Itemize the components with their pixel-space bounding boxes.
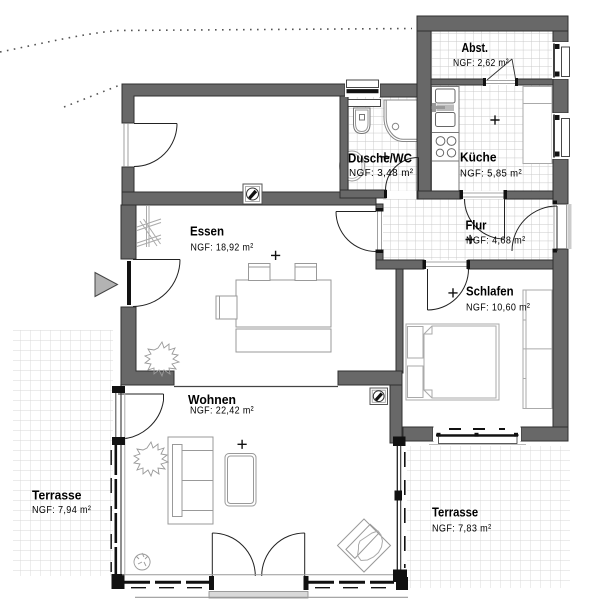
svg-text:Terrasse: Terrasse <box>32 488 82 503</box>
svg-text:Küche: Küche <box>460 150 497 165</box>
svg-text:Essen: Essen <box>190 224 224 239</box>
svg-text:NGF: 5,85 m²: NGF: 5,85 m² <box>460 169 522 180</box>
svg-text:NGF: 2,62 m²: NGF: 2,62 m² <box>453 58 509 69</box>
svg-text:NGF: 7,83 m²: NGF: 7,83 m² <box>432 524 492 535</box>
svg-text:Schlafen: Schlafen <box>466 284 514 299</box>
svg-text:NGF: 22,42 m²: NGF: 22,42 m² <box>190 406 254 417</box>
svg-text:NGF: 10,60 m²: NGF: 10,60 m² <box>466 303 531 314</box>
svg-text:NGF: 3,48 m²: NGF: 3,48 m² <box>349 168 414 179</box>
svg-text:Flur: Flur <box>466 218 487 233</box>
svg-text:NGF: 7,94 m²: NGF: 7,94 m² <box>32 505 92 516</box>
svg-text:Dusche/WC: Dusche/WC <box>348 151 413 166</box>
svg-text:Abst.: Abst. <box>462 40 489 55</box>
svg-text:NGF: 4,68 m²: NGF: 4,68 m² <box>466 236 526 247</box>
svg-text:NGF: 18,92 m²: NGF: 18,92 m² <box>191 243 254 254</box>
svg-text:Terrasse: Terrasse <box>432 505 478 520</box>
